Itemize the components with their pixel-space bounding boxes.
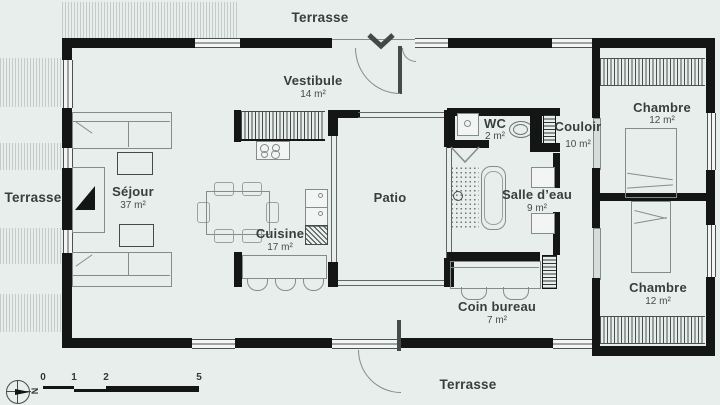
washbasin-icon [531, 167, 555, 188]
room-area-sejour: 37 m² [120, 200, 146, 211]
patio-glazing [331, 136, 337, 262]
window [192, 339, 235, 349]
burner-icon [261, 151, 268, 158]
window [707, 113, 716, 170]
desk-icon [450, 261, 541, 289]
toilet-bowl [513, 124, 528, 135]
terrace-label-top: Terrasse [292, 10, 349, 25]
wall-segment [530, 143, 560, 152]
wall-segment [447, 252, 540, 261]
faucet-dot [318, 193, 323, 198]
sofa-back-line [72, 275, 170, 276]
wall-segment [234, 252, 242, 287]
room-area-coin-bureau: 7 m² [487, 315, 507, 326]
window [63, 148, 73, 168]
scale-bar-segment [106, 386, 199, 392]
sofa-cushion-divider [128, 253, 129, 276]
patio-glazing [338, 280, 444, 286]
wall-segment [62, 38, 195, 48]
wall-segment [62, 338, 192, 348]
wall-segment [448, 38, 552, 48]
room-area-vestibule: 14 m² [300, 89, 326, 100]
room-area-chambre-nord: 12 m² [649, 115, 675, 126]
scale-tick: 2 [103, 372, 109, 383]
dishwasher-icon [305, 225, 328, 245]
room-label-couloir: Couloir [555, 119, 602, 134]
wall-segment [706, 38, 715, 113]
sink-icon [305, 207, 328, 227]
terrace-door-arc [358, 350, 401, 393]
kitchen-cabinets-icon [241, 111, 325, 141]
coffee-table-icon [117, 152, 153, 175]
terrace-label-bottom: Terrasse [440, 377, 497, 392]
patio-glazing [358, 112, 444, 118]
sofa-cushion-divider [128, 122, 129, 147]
wall-segment [592, 278, 600, 346]
wardrobe-icon [600, 58, 705, 86]
terrace-decking-top [62, 2, 238, 38]
sofa-back-line [72, 121, 170, 122]
desk-edge-line [450, 267, 539, 268]
room-label-vestibule: Vestibule [284, 73, 343, 88]
terrace-decking-left [0, 58, 62, 107]
floor-plan: Terrasse Terrasse Terrasse Chambre [0, 0, 720, 405]
entrance-door-arc [355, 48, 400, 94]
stool-icon [303, 278, 324, 291]
room-area-couloir: 10 m² [565, 139, 591, 150]
faucet-dot [318, 211, 323, 216]
terrace-decking-left [0, 294, 62, 332]
shower-head-icon [453, 191, 463, 201]
window [63, 60, 73, 108]
wall-segment [706, 277, 715, 356]
window [707, 225, 716, 277]
wall-segment [592, 168, 600, 193]
folding-door-icon [450, 146, 480, 164]
terrace-decking-left [0, 143, 62, 170]
scale-bar-segment [74, 389, 106, 392]
scale-tick: 5 [196, 372, 202, 383]
stool-icon [275, 278, 296, 291]
terrace-decking-left [0, 228, 62, 264]
wardrobe-icon [600, 316, 705, 344]
window [553, 339, 592, 349]
wall-segment [328, 262, 338, 287]
wall-segment [62, 168, 72, 230]
wall-segment [62, 38, 72, 60]
coffee-table-icon [119, 224, 154, 247]
room-area-cuisine: 17 m² [267, 242, 293, 253]
terrace-label-left: Terrasse [5, 190, 62, 205]
chair-icon [214, 229, 234, 243]
wall-segment [235, 338, 332, 348]
kitchen-island-icon [242, 255, 327, 279]
faucet-dot [464, 120, 471, 127]
room-label-coin-bureau: Coin bureau [458, 299, 536, 314]
window [195, 38, 240, 48]
stool-icon [247, 278, 268, 291]
wall-segment [592, 38, 715, 48]
room-label-chambre-sud: Chambre [629, 280, 687, 295]
scale-tick: 1 [71, 372, 77, 383]
wall-segment [62, 253, 72, 348]
washbasin-icon [531, 213, 555, 234]
north-letter: N [29, 388, 39, 395]
room-label-wc: WC [484, 116, 506, 131]
wall-segment [401, 338, 553, 348]
room-area-wc: 2 m² [485, 131, 505, 142]
room-label-sejour: Séjour [112, 184, 154, 199]
wall-segment [328, 110, 338, 136]
room-label-chambre-nord: Chambre [633, 100, 691, 115]
wall-segment [62, 108, 72, 148]
scale-tick: 0 [40, 372, 46, 383]
wall-segment [592, 346, 715, 356]
wall-segment [240, 38, 332, 48]
wall-segment [592, 201, 600, 228]
window-sidelight [332, 339, 398, 349]
wall-segment [592, 48, 600, 118]
room-area-chambre-sud: 12 m² [645, 296, 671, 307]
scale-bar-segment [43, 386, 74, 389]
shelving-icon [542, 255, 557, 289]
window [63, 230, 73, 253]
window [552, 38, 592, 48]
entrance-door-small-arc [402, 48, 416, 62]
burner-icon [271, 150, 280, 159]
wall-segment [234, 110, 241, 142]
room-label-patio: Patio [374, 190, 407, 205]
room-label-cuisine: Cuisine [256, 226, 304, 241]
bathtub-inner [484, 171, 503, 225]
sink-icon [305, 189, 328, 209]
room-label-salle-deau: Salle d’eau [502, 187, 572, 202]
bedroom-door [593, 228, 601, 280]
window [415, 38, 448, 48]
